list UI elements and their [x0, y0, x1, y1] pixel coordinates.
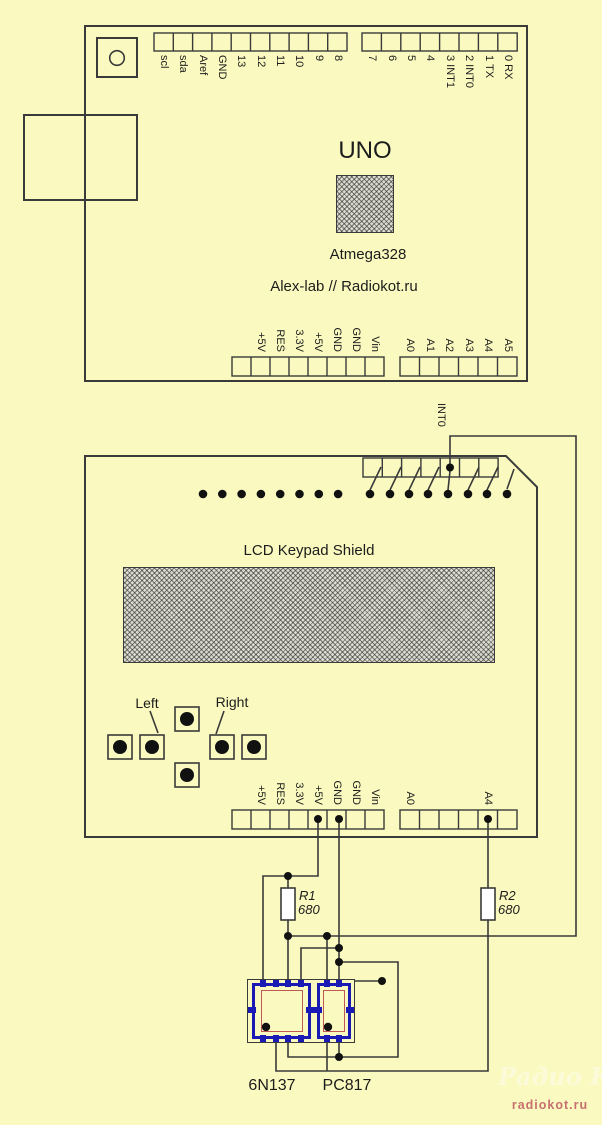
credit-label: Alex-lab // Radiokot.ru	[254, 278, 434, 295]
pin-label-10: 10	[292, 55, 305, 67]
int0-wire	[288, 436, 576, 936]
pin-header-shield-analog	[400, 810, 517, 829]
pin-label-a0: A0	[403, 792, 416, 805]
r1-value: 680	[298, 902, 320, 917]
pin-label-+5v: +5V	[311, 785, 324, 805]
int0-label: INT0	[434, 403, 447, 427]
shield-header-diagonals	[370, 467, 514, 490]
usb-connector	[24, 115, 137, 200]
pin-label-a5: A5	[501, 339, 514, 352]
pin-label-sda: sda	[176, 55, 189, 73]
pin-label-a3: A3	[462, 339, 475, 352]
pin-label-7: 7	[365, 55, 378, 61]
r2-value: 680	[498, 902, 520, 917]
power-jack	[97, 38, 137, 77]
pin-header-shield-top	[363, 458, 498, 477]
pin-label-a4: A4	[481, 792, 494, 805]
pin-label-2-int0: 2 INT0	[462, 55, 475, 88]
wiring-layer	[0, 0, 602, 1125]
pin-label-a2: A2	[442, 339, 455, 352]
pin-label-gnd: GND	[215, 55, 228, 79]
pin-label-5: 5	[404, 55, 417, 61]
pin-label-scl: scl	[157, 55, 170, 68]
pin-label-gnd: GND	[349, 328, 362, 352]
board-outlines	[24, 26, 537, 837]
uno-title: UNO	[330, 137, 400, 165]
pin-label-gnd: GND	[330, 328, 343, 352]
schematic-page: UNO Atmega328 Alex-lab // Radiokot.ru LC…	[0, 0, 602, 1125]
pin-label-13: 13	[234, 55, 247, 67]
r2-name: R2	[499, 888, 516, 903]
wires-group	[150, 436, 576, 1071]
pin-label-6: 6	[385, 55, 398, 61]
pin-label-gnd: GND	[330, 781, 343, 805]
watermark-site: radiokot.ru	[500, 1098, 600, 1112]
resistor-r2	[481, 888, 495, 920]
uno-board-outline	[85, 26, 527, 381]
pin-label-11: 11	[273, 55, 286, 66]
pin-label-a4: A4	[481, 339, 494, 352]
pin-header-uno-top-right	[362, 33, 517, 51]
pin-header-uno-power	[232, 357, 384, 376]
pin-label-9: 9	[312, 55, 325, 61]
gnd-branch-a	[301, 948, 339, 981]
shield-top-pin-dots	[199, 490, 512, 499]
pin-label-3.3v: 3.3V	[292, 329, 305, 352]
pin-label-8: 8	[331, 55, 344, 61]
keypad-button-caps	[113, 712, 261, 782]
power-jack-hole	[110, 51, 125, 66]
pin-header-uno-top-left	[154, 33, 347, 51]
watermark-logo: Радио КОТ	[498, 1062, 598, 1091]
pin-label-1-tx: 1 TX	[482, 55, 495, 78]
pin-label-12: 12	[254, 55, 267, 67]
pin-label-a1: A1	[423, 339, 436, 352]
pin-label-+5v: +5V	[311, 332, 324, 352]
opto2-label: PC817	[317, 1077, 377, 1095]
pin-label-res: RES	[273, 782, 286, 805]
pin-label-0-rx: 0 RX	[501, 55, 514, 79]
right-button-label: Right	[207, 694, 257, 710]
pin-header-shield-power	[232, 810, 384, 829]
pin-label-3.3v: 3.3V	[292, 782, 305, 805]
pin-label-+5v: +5V	[254, 785, 267, 805]
resistor-r1	[281, 888, 295, 920]
opto1-label: 6N137	[242, 1077, 302, 1095]
atmega-label: Atmega328	[318, 246, 418, 263]
pin-label-4: 4	[423, 55, 436, 61]
left-label-pointer	[150, 711, 158, 733]
atmega-chip	[336, 175, 394, 233]
pin-label-aref: Aref	[196, 55, 209, 75]
pin-label-+5v: +5V	[254, 332, 267, 352]
lcd-screen	[123, 567, 495, 663]
pin-label-vin: Vin	[368, 336, 381, 352]
opto-outer-case	[247, 979, 355, 1043]
shield-title: LCD Keypad Shield	[229, 542, 389, 559]
right-label-pointer	[216, 711, 224, 734]
pin-label-res: RES	[273, 329, 286, 352]
pin-label-gnd: GND	[349, 781, 362, 805]
r1-name: R1	[299, 888, 316, 903]
left-button-label: Left	[122, 695, 172, 711]
pin-label-3-int1: 3 INT1	[443, 55, 456, 88]
pin-label-a0: A0	[403, 339, 416, 352]
pin-label-vin: Vin	[368, 789, 381, 805]
pin-header-uno-analog	[400, 357, 517, 376]
